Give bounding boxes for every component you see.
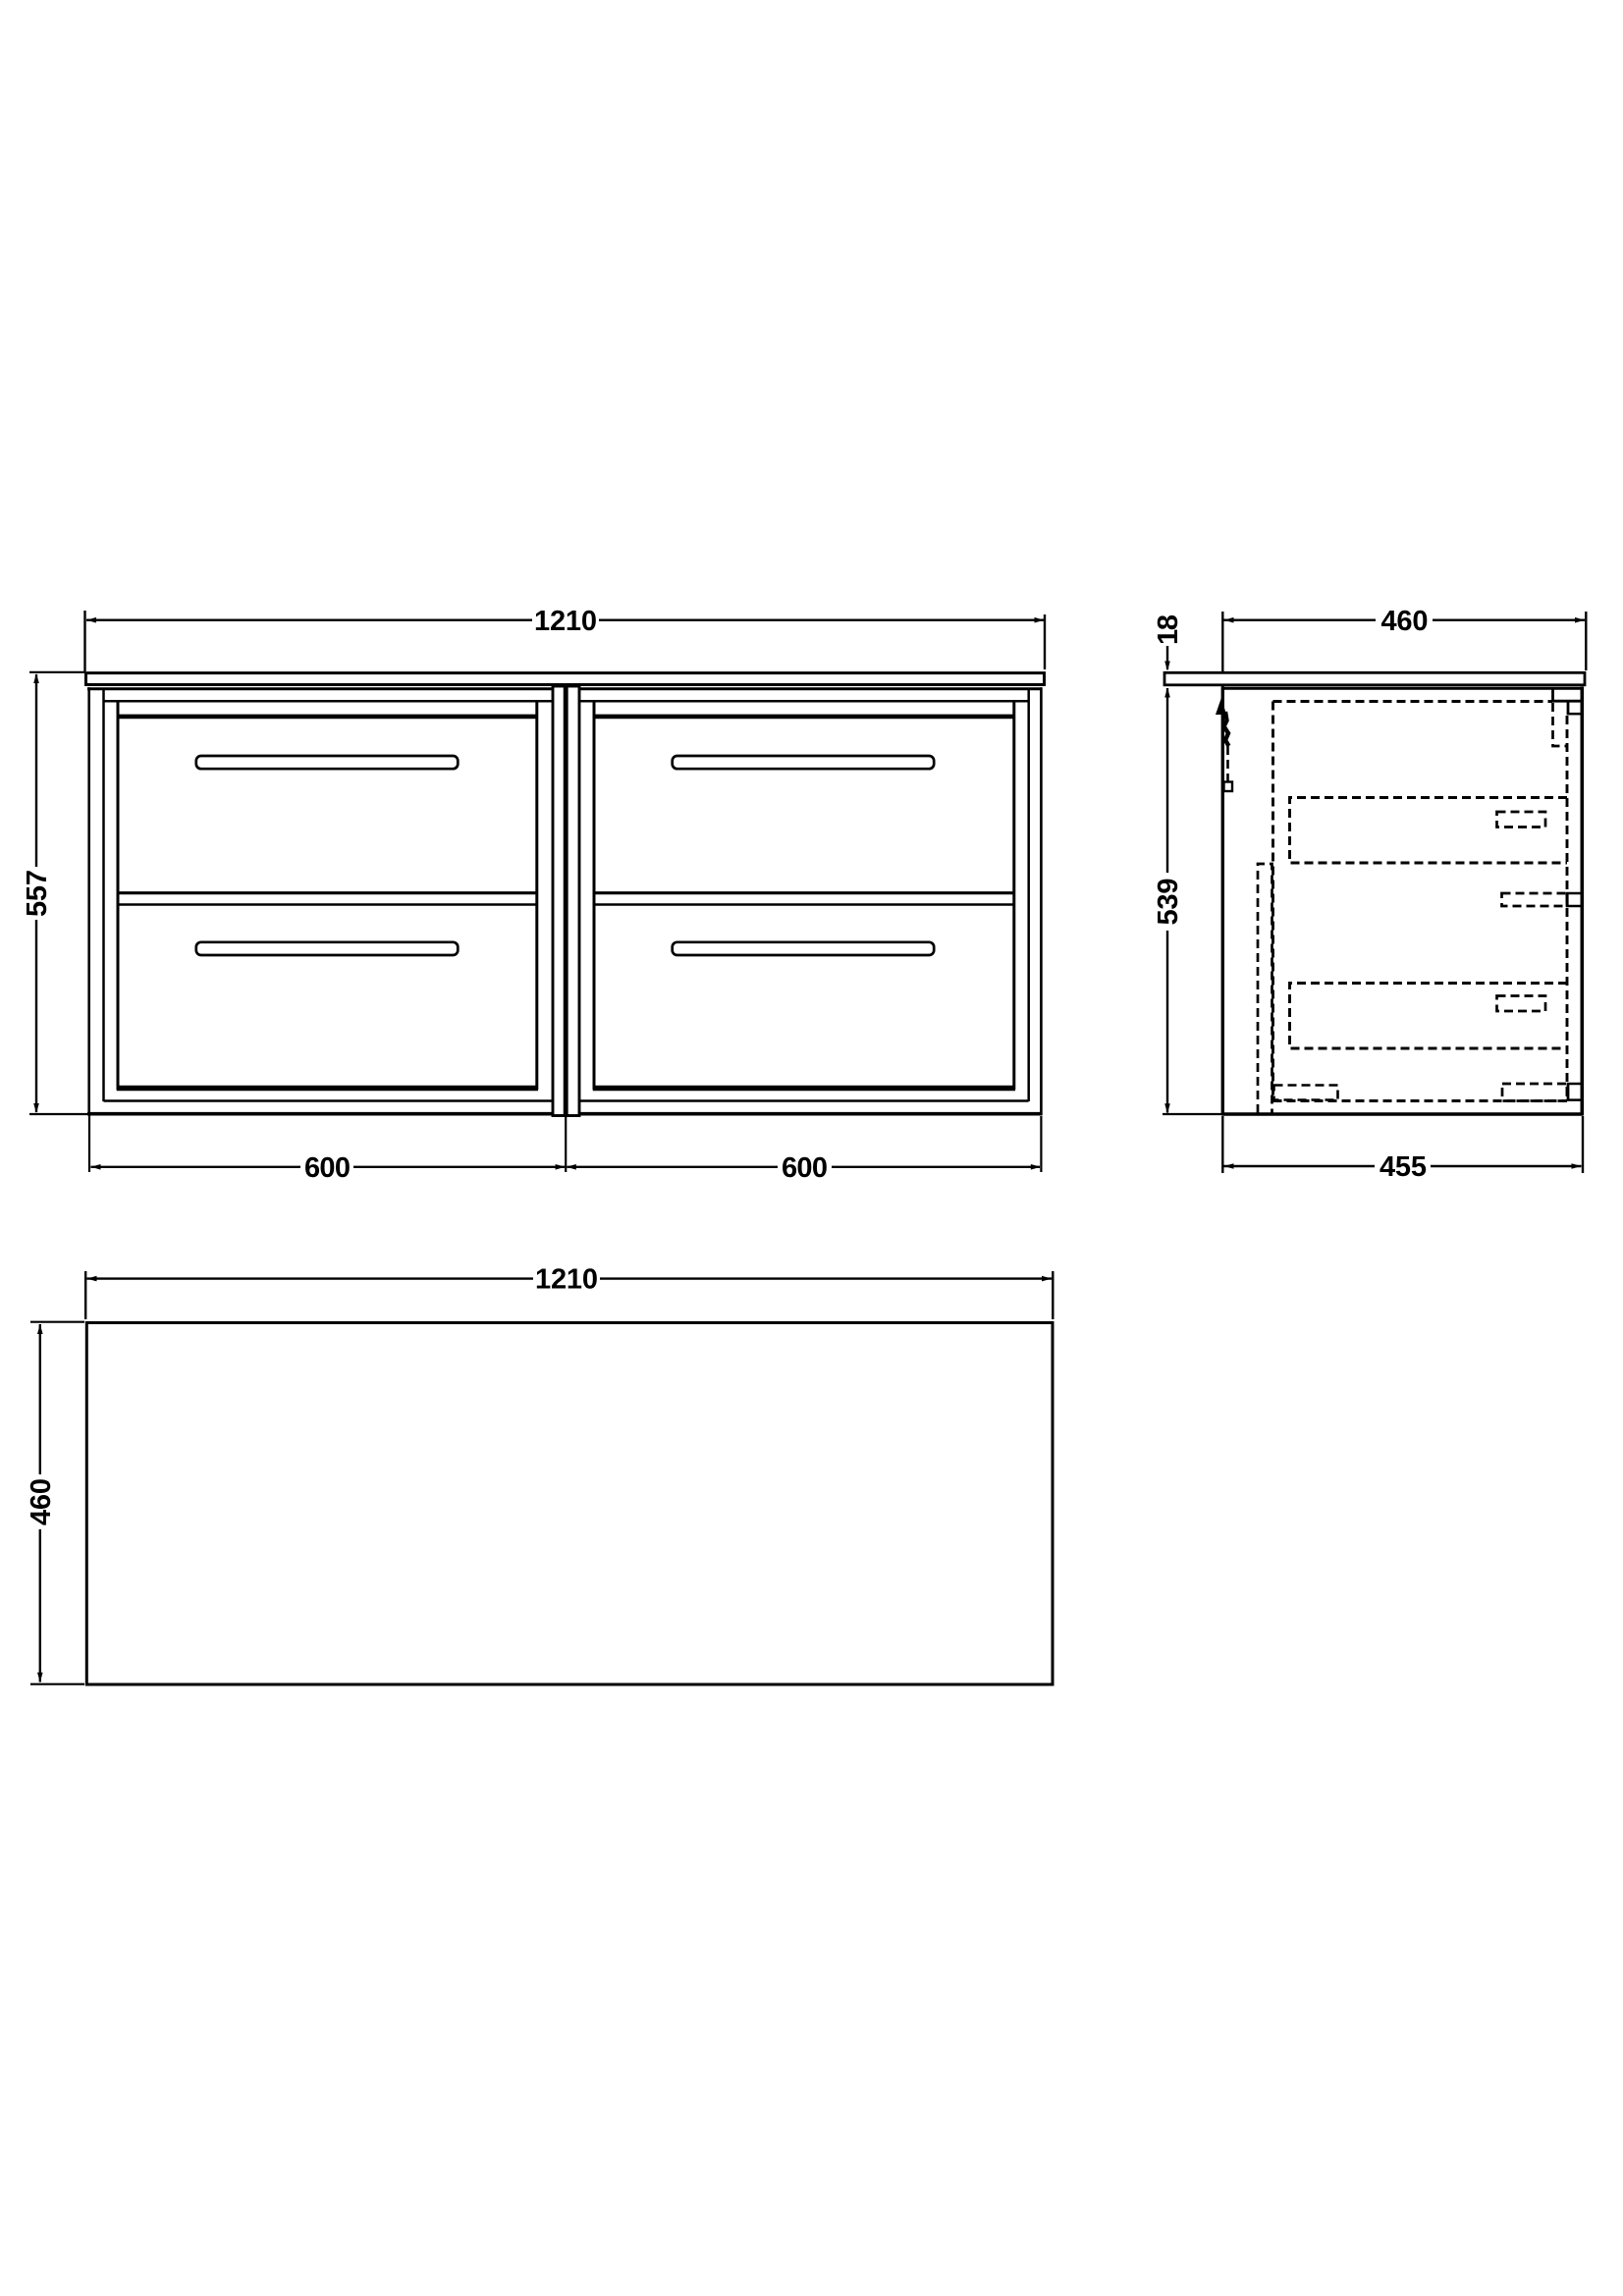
svg-text:600: 600 — [304, 1152, 351, 1184]
svg-text:1210: 1210 — [534, 606, 597, 637]
svg-text:460: 460 — [26, 1478, 57, 1525]
svg-text:1210: 1210 — [535, 1264, 598, 1296]
svg-text:600: 600 — [782, 1152, 828, 1184]
svg-text:460: 460 — [1381, 606, 1429, 637]
svg-text:557: 557 — [22, 870, 53, 917]
svg-text:18: 18 — [1153, 614, 1184, 645]
svg-text:539: 539 — [1153, 879, 1184, 926]
svg-text:455: 455 — [1380, 1151, 1427, 1183]
